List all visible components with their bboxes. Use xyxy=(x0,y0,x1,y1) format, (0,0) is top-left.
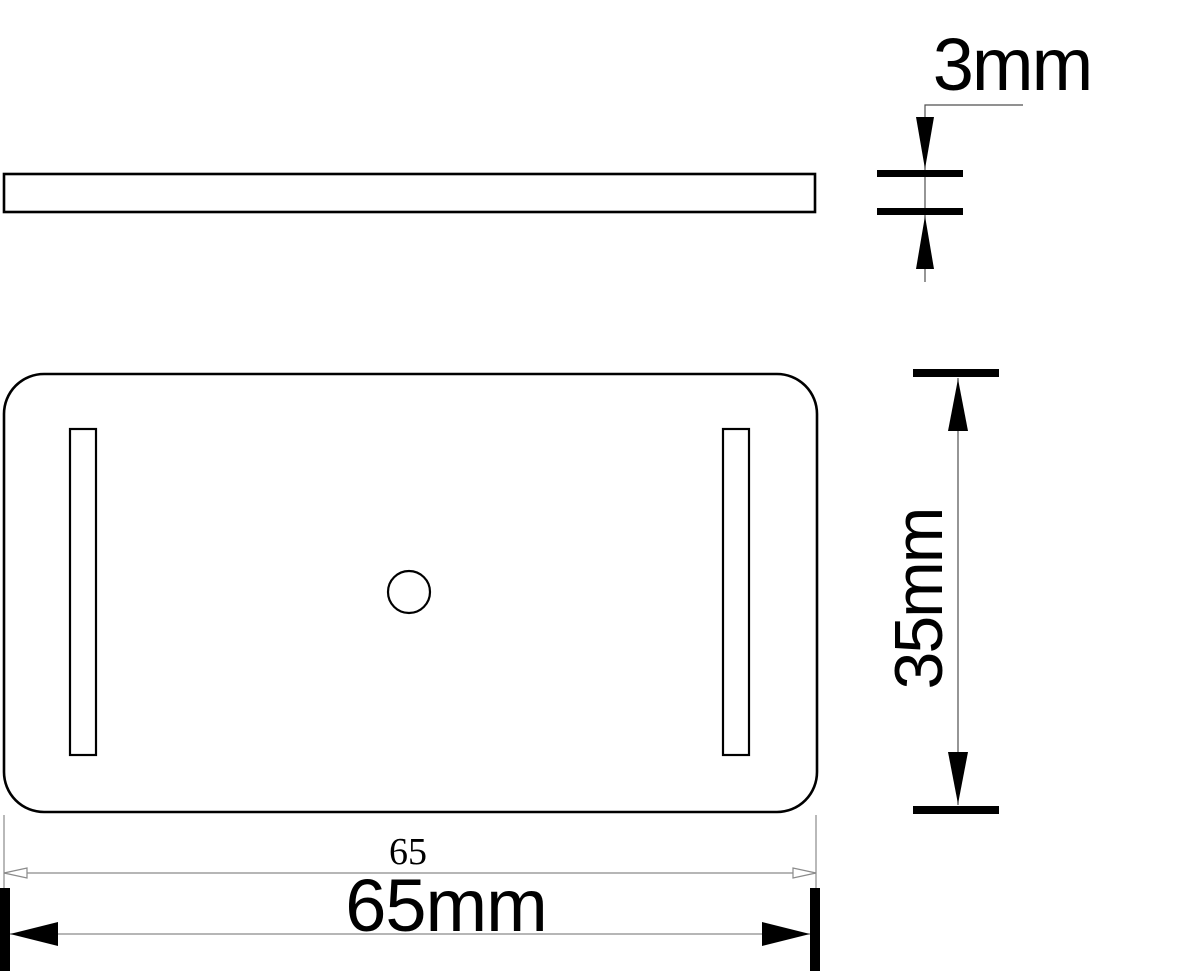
thickness-dim-leader-line xyxy=(925,105,1023,282)
technical-drawing: 3mm 35mm 65 xyxy=(0,0,1200,974)
thickness-dimension: 3mm xyxy=(877,23,1091,282)
width-ref-arrow-left xyxy=(4,868,27,878)
height-dim-label: 35mm xyxy=(881,509,957,690)
width-ref-arrow-right xyxy=(793,868,816,878)
thickness-dim-arrow-down xyxy=(916,117,934,169)
drawing-canvas: 3mm 35mm 65 xyxy=(0,0,1200,974)
width-dim-label: 65mm xyxy=(345,864,547,947)
thickness-dim-tick-top xyxy=(877,170,963,177)
width-dimension: 65mm xyxy=(0,864,820,971)
thickness-dim-arrow-up xyxy=(916,216,934,269)
height-dimension: 35mm xyxy=(881,369,999,814)
left-slot xyxy=(70,429,96,755)
height-dim-tick-top xyxy=(913,369,999,377)
width-dim-tick-right xyxy=(810,888,820,971)
right-slot xyxy=(723,429,749,755)
plate-side-view-outline xyxy=(4,174,815,212)
width-dim-tick-left xyxy=(0,888,10,971)
plate-top-view xyxy=(4,374,817,812)
center-hole xyxy=(388,571,430,613)
height-dim-arrow-down xyxy=(948,752,968,804)
thickness-dim-tick-bottom xyxy=(877,208,963,215)
width-dim-arrow-left xyxy=(10,922,58,946)
height-dim-tick-bottom xyxy=(913,806,999,814)
height-dim-arrow-up xyxy=(948,379,968,431)
thickness-dim-label: 3mm xyxy=(933,23,1091,106)
width-dim-arrow-right xyxy=(762,922,810,946)
plate-side-view xyxy=(4,174,815,212)
